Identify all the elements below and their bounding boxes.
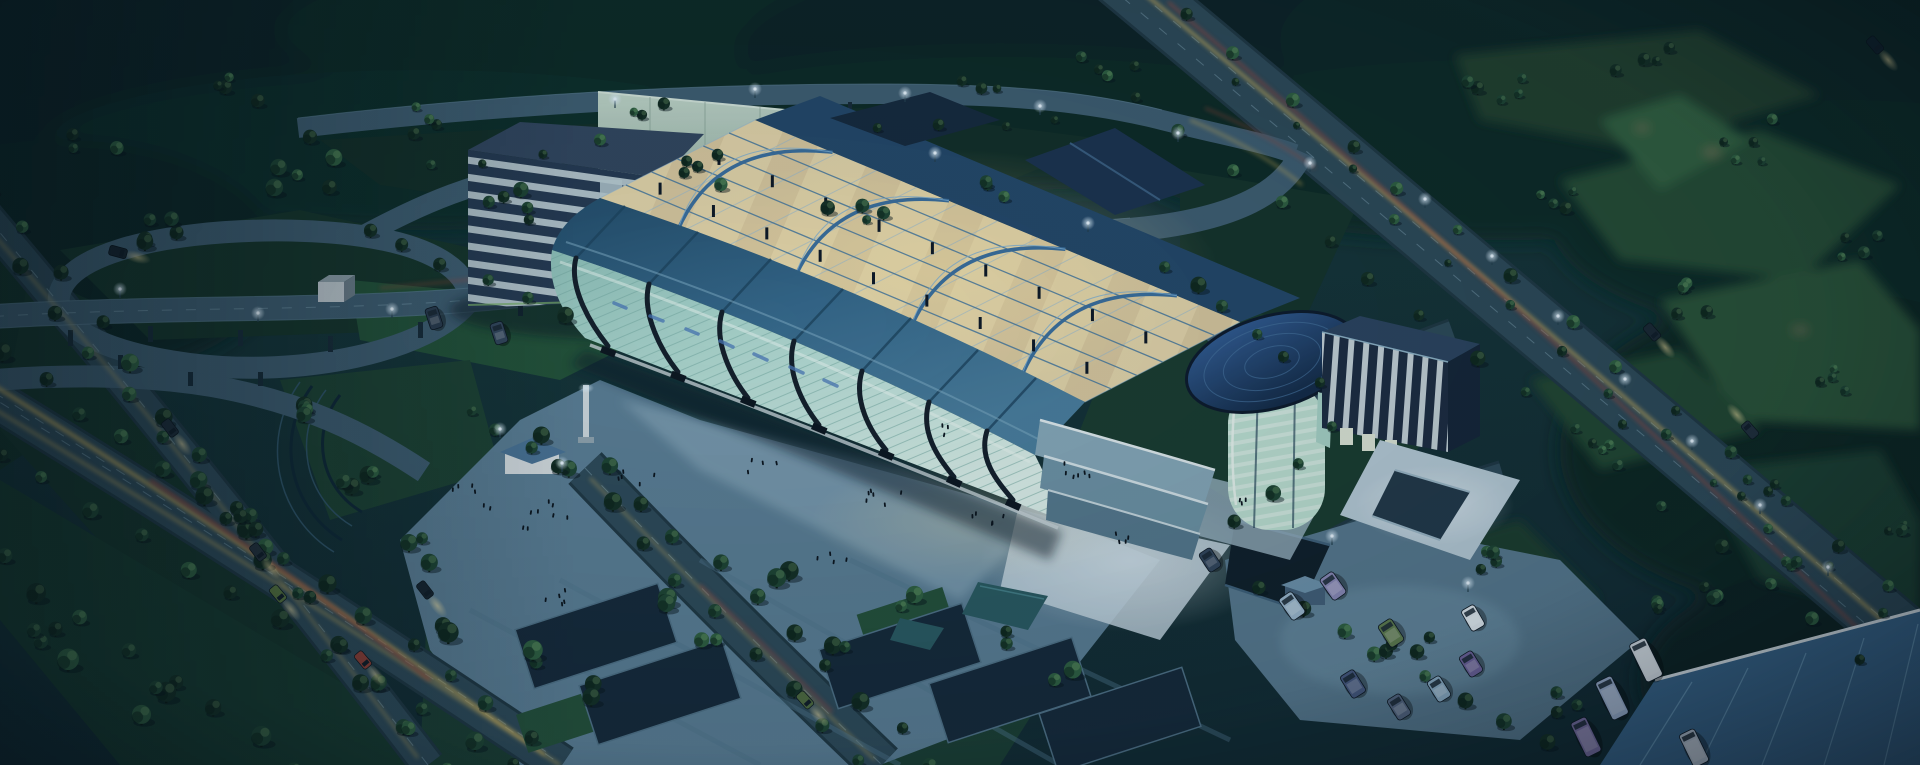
architectural-rendering xyxy=(0,0,1920,765)
vignette xyxy=(0,0,1920,765)
rendering-canvas xyxy=(0,0,1920,765)
